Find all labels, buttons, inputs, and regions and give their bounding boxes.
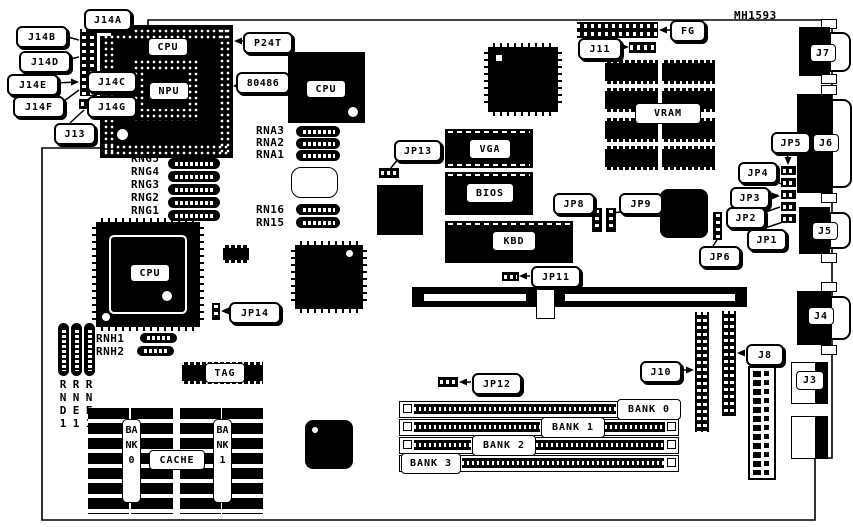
callout-j14e: J14E: [7, 74, 59, 96]
rn16-sip: [296, 204, 340, 215]
j6-label: J6: [813, 134, 839, 152]
callout-j14c: J14C: [87, 71, 137, 93]
vram-chip: [605, 146, 658, 170]
callout-j10: J10: [640, 361, 682, 383]
j4-label: J4: [808, 307, 834, 325]
rnh2-label: RNH2: [96, 345, 125, 358]
j3-label: J3: [796, 371, 824, 390]
callout-j14f: J14F: [13, 96, 65, 118]
jp11-jumper: [502, 272, 519, 281]
rn15-sip: [296, 217, 340, 228]
rn16-label: RN16: [256, 203, 285, 216]
jp1-jumper: [781, 214, 796, 223]
rng4-label: RNG4: [131, 165, 160, 178]
rng5-sip: [168, 158, 220, 169]
callout-jp3: JP3: [730, 187, 770, 209]
j10-pin-header: [695, 312, 709, 432]
jp14-jumper: [212, 303, 220, 320]
jp4-jumper: [781, 178, 796, 187]
rng3-sip: [168, 184, 220, 195]
cache-bank1-label: BANK1: [213, 419, 232, 503]
callout-jp5: JP5: [771, 132, 811, 154]
callout-jp11: JP11: [531, 266, 581, 288]
callout-p24t: P24T: [243, 32, 293, 54]
rng5-label: RNG5: [131, 152, 160, 165]
pin1-dot: [346, 250, 353, 257]
bank2-label: BANK 2: [472, 435, 536, 456]
bus-slot-right: [553, 287, 747, 307]
callout-jp6: JP6: [699, 246, 741, 268]
qfp-chip-bottom: [305, 420, 353, 469]
callout-jp1: JP1: [747, 229, 787, 251]
rnh1-sip: [140, 333, 177, 343]
vram-chip: [605, 60, 658, 84]
board-part-number: MH1593: [734, 9, 777, 22]
rnh2-sip: [137, 346, 174, 356]
callout-jp9: JP9: [619, 193, 663, 215]
pin1-dot: [348, 107, 358, 117]
cache-bank0-label: BANK0: [122, 419, 141, 503]
j11-pin-header: [629, 42, 656, 53]
pin1-dot: [102, 313, 110, 321]
small-dip-chip: [223, 245, 249, 263]
vga-label: VGA: [469, 139, 511, 159]
callout-jp2: JP2: [726, 207, 766, 229]
callout-j11: J11: [578, 38, 622, 60]
rng2-label: RNG2: [131, 191, 160, 204]
bios-label: BIOS: [466, 183, 514, 203]
callout-jp4: JP4: [738, 162, 778, 184]
rna1-sip: [296, 150, 340, 161]
screw-tab: [821, 253, 837, 263]
npu-socket-label: NPU: [149, 82, 189, 100]
jp12-jumper: [438, 377, 458, 387]
rne1-label: RNE1: [70, 378, 82, 430]
bus-slot-left: [412, 287, 538, 307]
kbd-label: KBD: [492, 231, 536, 251]
pin1-dot: [496, 55, 502, 61]
rnd1-sip: [58, 323, 69, 376]
rng2-sip: [168, 197, 220, 208]
bank3-label: BANK 3: [401, 453, 461, 474]
screw-tab: [821, 74, 837, 84]
cpu2-label: CPU: [306, 80, 346, 98]
callout-j14g: J14G: [87, 96, 137, 118]
vram-label: VRAM: [635, 103, 701, 124]
rne1-sip: [71, 323, 82, 376]
fg-pin-header: [577, 22, 658, 38]
qfp-chip-top: [488, 47, 558, 112]
cache-label: CACHE: [149, 450, 205, 470]
soj-chip: [377, 185, 423, 235]
jp13-jumper: [379, 168, 399, 178]
callout-fg: FG: [670, 20, 706, 42]
callout-j13: J13: [54, 123, 96, 145]
screw-tab: [821, 345, 837, 355]
pin1-dot: [117, 129, 128, 140]
jp2-jumper: [781, 202, 796, 211]
callout-j14b: J14B: [16, 26, 68, 48]
jp6-jumper: [713, 212, 722, 240]
tag-label: TAG: [205, 363, 245, 383]
bus-slot-divider: [536, 286, 555, 319]
callout-j14a: J14A: [84, 9, 132, 31]
rng1-label: RNG1: [131, 204, 160, 217]
aux-connector: [791, 416, 817, 459]
j7-label: J7: [810, 44, 836, 62]
jp3-jumper: [781, 190, 796, 199]
bank1-label: BANK 1: [541, 417, 605, 438]
rna3-sip: [296, 126, 340, 137]
rna2-sip: [296, 138, 340, 149]
j5-label: J5: [812, 222, 838, 240]
callout-jp8: JP8: [553, 193, 595, 215]
edge-connector: [748, 366, 776, 480]
vram-chip: [662, 60, 715, 84]
inner-dot: [162, 291, 172, 301]
bank0-label: BANK 0: [617, 399, 681, 420]
motherboard-diagram: MH1593 CPU NPU CPU RNG5 RNG4 RNG3 RNG2 R…: [0, 0, 853, 527]
rnh1-label: RNH1: [96, 332, 125, 345]
aux-connector-band: [815, 416, 828, 459]
jp9-jumper: [606, 208, 616, 232]
cpu-socket-label: CPU: [148, 38, 188, 56]
jp5-jumper: [781, 166, 796, 175]
rn15-label: RN15: [256, 216, 285, 229]
qfp-chip-right: [660, 189, 708, 238]
rna1-label: RNA1: [256, 148, 285, 161]
pin1-dot: [312, 427, 318, 433]
screw-tab: [821, 193, 837, 203]
rnf1-sip: [84, 323, 95, 376]
callout-jp14: JP14: [229, 302, 281, 324]
crystal-oscillator: [291, 167, 338, 198]
callout-80486: 80486: [236, 72, 290, 94]
callout-j14d: J14D: [19, 51, 71, 73]
vram-chip: [662, 146, 715, 170]
cpu3-label: CPU: [130, 264, 170, 282]
rng4-sip: [168, 171, 220, 182]
callout-jp12: JP12: [472, 373, 522, 395]
callout-j8: J8: [746, 344, 784, 366]
callout-jp13: JP13: [394, 140, 442, 162]
rnd1-label: RND1: [57, 378, 69, 430]
rng3-label: RNG3: [131, 178, 160, 191]
qfp-chip-mid: [295, 245, 363, 309]
j8-pin-header: [722, 311, 736, 416]
